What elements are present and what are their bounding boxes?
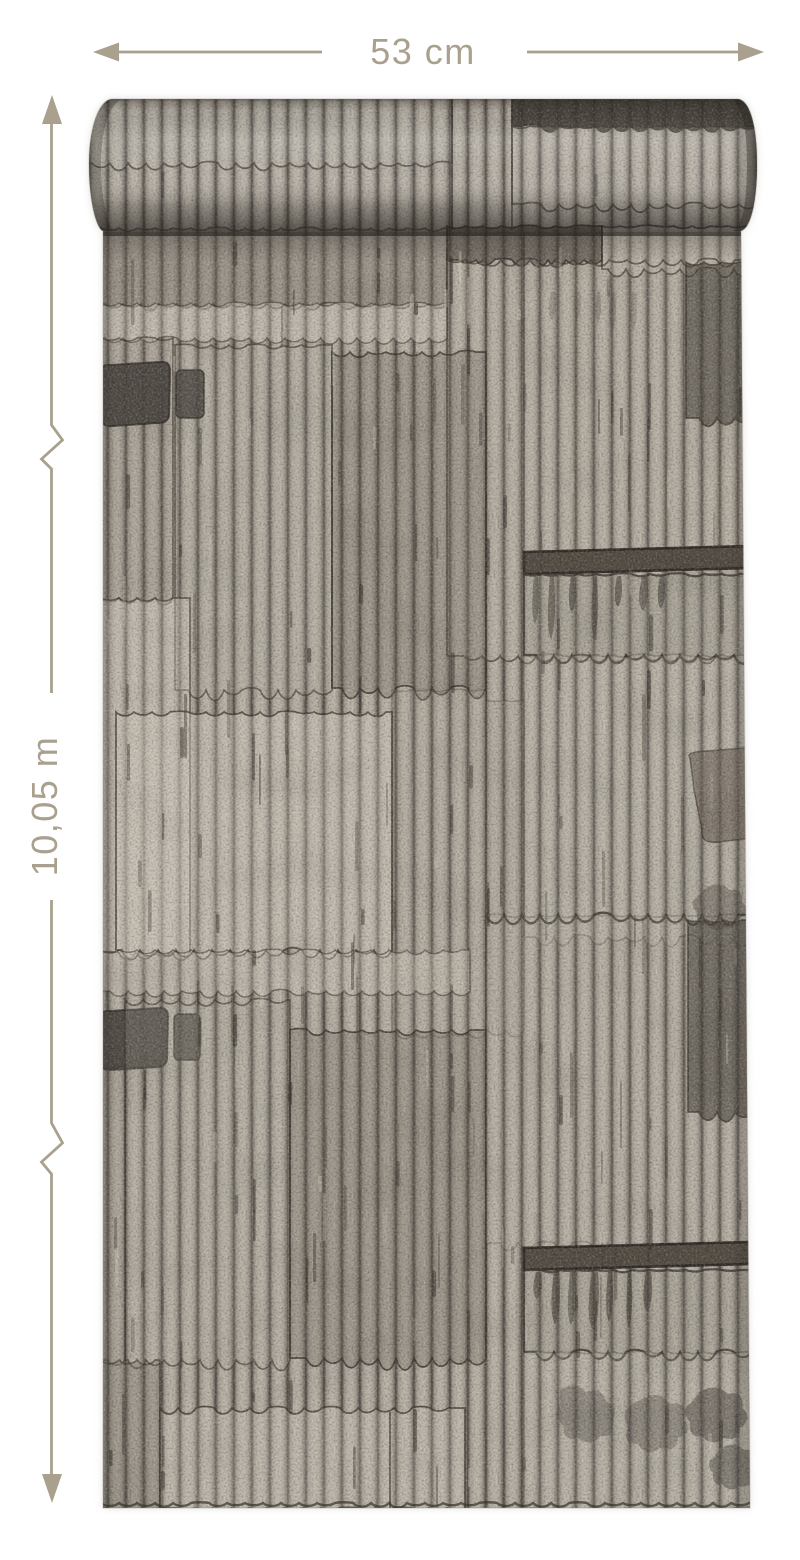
svg-text:10,05 m: 10,05 m bbox=[24, 736, 65, 877]
svg-text:53 cm: 53 cm bbox=[370, 31, 476, 72]
